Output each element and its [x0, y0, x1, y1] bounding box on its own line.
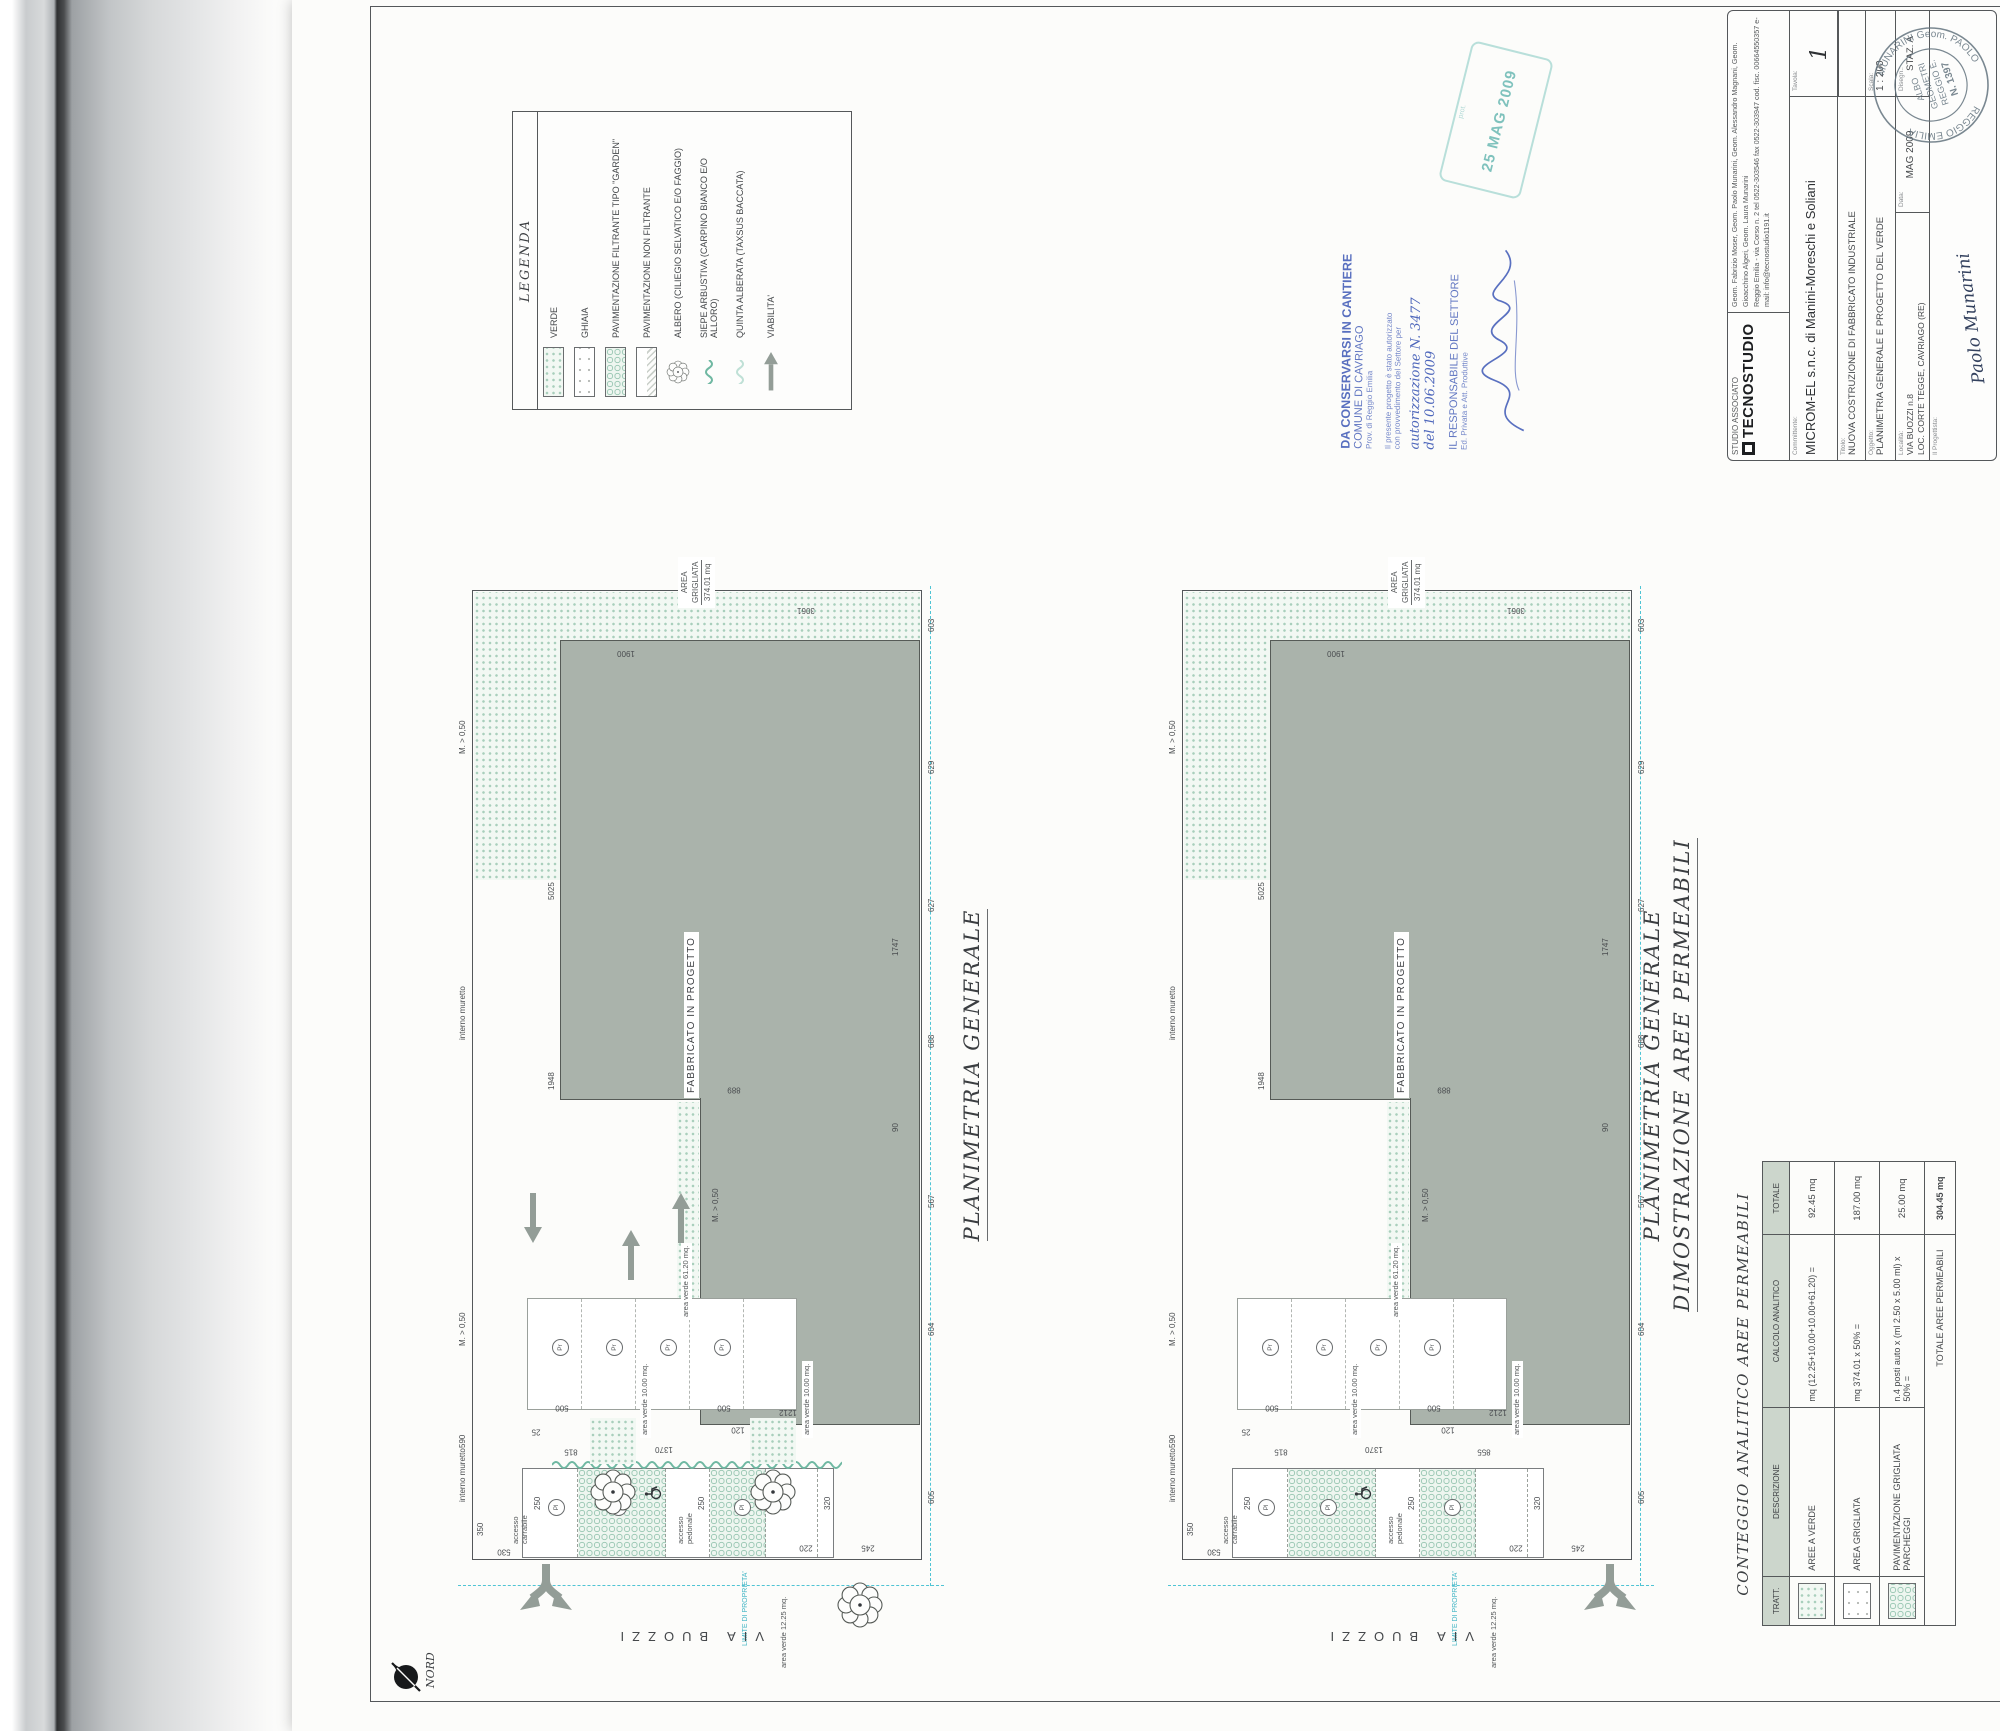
- dimension-label: 1900: [617, 649, 635, 657]
- committente-value: MICROM-EL s.n.c. di Manini-Moreschi e So…: [1803, 102, 1818, 455]
- scanner-edge-band: [0, 0, 292, 1731]
- viability-arrow-icon: [762, 352, 780, 392]
- parking-circle-pl: Pl: [1320, 1499, 1337, 1516]
- area-grigliata-value: 374.01 mq: [1412, 560, 1423, 605]
- accesso-label: accesso carrabile: [512, 1504, 529, 1544]
- stamp-received-date: 25 MAG 2009: [1474, 51, 1524, 191]
- parking-circle-pr: Pr: [714, 1339, 731, 1356]
- stamp-signature-scribble: [1469, 220, 1541, 451]
- studio-contacts: Reggio Emilia - via Corso n. 2 tel 0522-…: [1752, 16, 1774, 307]
- table-row: PAVIMENTAZIONE GRIGLIATA PARCHEGGI n.4 p…: [1880, 1162, 1925, 1626]
- drawing-sheet: NORD LEGENDA VERDEGHIAIAPAVIMENTAZIONE F…: [292, 0, 2000, 1731]
- area-grigliata-name: AREA GRIGLIATA: [679, 560, 702, 605]
- dimension-label: 3061: [797, 606, 815, 614]
- legend-item: ALBERO (CILIEGIO SELVATICO E/O FAGGIO): [662, 112, 693, 409]
- table-row: AREA GRIGLIATA mq 374.01 x 50% = 187.00 …: [1835, 1162, 1880, 1626]
- street-label: VIA BUOZZI: [612, 1629, 764, 1644]
- building-label: FABBRICATO IN PROGETTO: [684, 932, 699, 1098]
- area-verde-label: area verde 61.20 mq.: [681, 1243, 692, 1320]
- plan2-title: PLANIMETRIA GENERALE DIMOSTRAZIONE AREE …: [1640, 590, 1694, 1560]
- dimension-label: M. > 0,50: [1169, 1312, 1177, 1346]
- dimension-label: 5025: [548, 882, 556, 900]
- dimension-label: 90: [1602, 1123, 1610, 1132]
- dimension-label: 500: [1265, 1403, 1278, 1411]
- viability-arrow-icon: [672, 1193, 690, 1245]
- studio-small: STUDIO ASSOCIATO: [1731, 377, 1740, 455]
- swatch-half: [647, 348, 657, 396]
- col-descrizione: DESCRIZIONE: [1763, 1407, 1790, 1576]
- entrance-split-arrow-icon: [1574, 1562, 1646, 1614]
- hedge-icon: [702, 360, 716, 384]
- title-block: STUDIO ASSOCIATO TECNOSTUDIO Geom. Fabri…: [1727, 10, 1997, 461]
- site-plan-permeabili: FABBRICATO IN PROGETTOPrPrPrPrPlPlPl acc…: [1182, 590, 1632, 1560]
- dimension-label: 90: [892, 1123, 900, 1132]
- localita-line2: LOC. CORTE TEGGE, CAVRIAGO (RE): [1916, 218, 1927, 455]
- stamp-line: Prov. di Reggio Emilia: [1365, 169, 1377, 449]
- parking-circle-pr: Pr: [1316, 1339, 1333, 1356]
- legend-item-label: PAVIMENTAZIONE FILTRANTE TIPO "GARDEN": [611, 139, 621, 338]
- studio-names: Geom. Fabrizio Moser, Geom. Paolo Munari…: [1730, 16, 1752, 307]
- dimension-label: 815: [1274, 1447, 1287, 1455]
- dimension-label: 25: [1242, 1428, 1251, 1436]
- titolo-cell: Titolo: NUOVA COSTRUZIONE DI FABBRICATO …: [1838, 96, 1865, 460]
- dimension-label: 889: [727, 1085, 740, 1093]
- dimension-label: 1370: [655, 1445, 673, 1453]
- wheelchair-icon: [644, 1484, 662, 1502]
- dimension-label: 530: [497, 1547, 510, 1555]
- street-label: VIA BUOZZI: [1322, 1629, 1474, 1644]
- area-verde-label: area verde 10.00 mq.: [1350, 1361, 1361, 1438]
- entrance-arrow: [510, 1562, 582, 1614]
- localita-cell: Località: VIA BUOZZI n.8 LOC. CORTE TEGG…: [1896, 212, 1929, 460]
- viability-arrow-icon: [622, 1230, 640, 1282]
- stamp-date: del 10.06.2009: [1423, 169, 1441, 449]
- dimension-label: 590: [459, 1435, 467, 1448]
- dimension-label: 120: [731, 1425, 744, 1433]
- dimension-label: interno muretto: [459, 1448, 467, 1502]
- verde-patch: [590, 1418, 636, 1464]
- swatch-ghiaia: [574, 347, 595, 397]
- studio-info-cell: Geom. Fabrizio Moser, Geom. Paolo Munari…: [1728, 11, 1789, 312]
- dimension-label: 220: [1509, 1543, 1522, 1551]
- stamp-line: con provvedimento del Settore per: [1393, 169, 1405, 449]
- legend-item-label: GHIAIA: [580, 307, 590, 338]
- dimension-label: 1900: [1327, 649, 1345, 657]
- dimension-label: M. > 0,50: [459, 720, 467, 754]
- col-tratt: TRATT.: [1763, 1576, 1790, 1625]
- logo-square-icon: [1742, 442, 1755, 455]
- dimension-label: 1747: [1602, 938, 1610, 956]
- quinta-swatch: [729, 347, 750, 397]
- viability-arrow: [524, 1191, 542, 1243]
- dimension-label: 889: [1437, 1085, 1450, 1093]
- viability-arrow: [672, 1193, 690, 1245]
- permeable-areas-table: CONTEGGIO ANALITICO AREE PERMEABILI TRAT…: [1734, 1148, 1956, 1640]
- plan1-title: PLANIMETRIA GENERALE: [960, 590, 984, 1560]
- table-footer-row: TOTALE AREE PERMEABILI 304.45 mq: [1925, 1162, 1956, 1626]
- tree-icon: [747, 1466, 799, 1518]
- tecnostudio-logo: TECNOSTUDIO: [1740, 318, 1757, 455]
- legend-item: VIABILITA': [755, 112, 786, 409]
- tree-symbol: [834, 1579, 886, 1631]
- tree-icon: [834, 1579, 886, 1631]
- parking-column-private: [527, 1298, 797, 1410]
- viability-arrow-icon: [524, 1191, 542, 1243]
- parking-circle-pr: Pr: [1262, 1339, 1279, 1356]
- dimension-label: 220: [799, 1543, 812, 1551]
- dimension-label: 530: [1207, 1547, 1220, 1555]
- accesso-label: accesso pedonale: [677, 1504, 694, 1544]
- dimension-label: M. > 0,50: [712, 1188, 720, 1222]
- tree-symbol: [747, 1466, 799, 1518]
- table-header-row: TRATT. DESCRIZIONE CALCOLO ANALITICO TOT…: [1763, 1162, 1790, 1626]
- wheelchair-stall: [1354, 1484, 1372, 1502]
- dimension-label: 1948: [1258, 1072, 1266, 1090]
- area-grigliata-label: AREA GRIGLIATA374.01 mq: [1388, 557, 1425, 608]
- legend-item-label: PAVIMENTAZIONE NON FILTRANTE: [642, 187, 652, 338]
- area-grigliata-name: AREA GRIGLIATA: [1389, 560, 1412, 605]
- dimension-label: interno muretto: [459, 986, 467, 1040]
- parking-circle-pl: Pl: [1258, 1499, 1275, 1516]
- dimension-label: 688: [928, 1035, 936, 1048]
- legend-item: SIEPE ARBUSTIVA (CARPINO BIANCO E/O ALLO…: [693, 112, 724, 409]
- building-label: FABBRICATO IN PROGETTO: [1394, 932, 1409, 1098]
- committente-cell: Committente: MICROM-EL s.n.c. di Manini-…: [1790, 96, 1837, 460]
- swatch-half: [637, 348, 647, 396]
- dimension-label: 5025: [1258, 882, 1266, 900]
- north-symbol: NORD: [388, 1635, 437, 1695]
- area-verde-label: area verde 10.00 mq.: [1512, 1361, 1523, 1438]
- area-verde-label: area verde 61.20 mq.: [1391, 1243, 1402, 1320]
- dimension-label: M. > 0,50: [1422, 1188, 1430, 1222]
- plan2-title-line1: PLANIMETRIA GENERALE: [1640, 590, 1664, 1560]
- dimension-label: 604: [928, 1323, 936, 1336]
- swatch-verde: [543, 347, 564, 397]
- accesso-label: accesso pedonale: [1387, 1504, 1404, 1544]
- swatch-verde: [1798, 1583, 1826, 1619]
- dimension-label: interno muretto: [1169, 986, 1177, 1040]
- dimension-label: 1948: [548, 1072, 556, 1090]
- arrow-swatch: [760, 347, 781, 397]
- dimension-label: M. > 0,50: [459, 1312, 467, 1346]
- table-title: CONTEGGIO ANALITICO AREE PERMEABILI: [1734, 1148, 1752, 1640]
- table-row: AREE A VERDE mq (12.25+10.00+10.00+61.20…: [1790, 1162, 1835, 1626]
- legend-item: PAVIMENTAZIONE FILTRANTE TIPO "GARDEN": [600, 112, 631, 409]
- legend-item: GHIAIA: [569, 112, 600, 409]
- dimension-label: 250: [1408, 1497, 1416, 1510]
- dimension-label: 1212: [779, 1408, 797, 1416]
- dimension-label: interno muretto: [1169, 1448, 1177, 1502]
- tree-icon: [665, 359, 691, 385]
- parking-column-private: [1237, 1298, 1507, 1410]
- plan2-title-line2: DIMOSTRAZIONE AREE PERMEABILI: [1670, 838, 1698, 1311]
- dimension-label: 245: [1571, 1543, 1584, 1551]
- area-grigliata-value: 374.01 mq: [702, 560, 713, 605]
- legend: LEGENDA VERDEGHIAIAPAVIMENTAZIONE FILTRA…: [512, 111, 852, 410]
- swatch-garden: [1888, 1583, 1916, 1619]
- dimension-label: 815: [564, 1447, 577, 1455]
- wheelchair-stall: [644, 1484, 662, 1502]
- studio-logo-cell: STUDIO ASSOCIATO TECNOSTUDIO: [1728, 312, 1789, 460]
- dimension-label: 3061: [1507, 606, 1525, 614]
- nonfiltrante-swatch: [636, 347, 657, 397]
- dimension-label: 603: [928, 619, 936, 632]
- area-verde-label: area verde 10.00 mq.: [640, 1361, 651, 1438]
- entrance-arrow: [1574, 1562, 1646, 1614]
- accesso-label: accesso carrabile: [1222, 1504, 1239, 1544]
- dimension-label: 320: [1534, 1497, 1542, 1510]
- dimension-label: 1370: [1365, 1445, 1383, 1453]
- dimension-label: 350: [477, 1523, 485, 1536]
- dimension-label: 250: [534, 1497, 542, 1510]
- hedge-icon: [733, 360, 747, 384]
- dimension-label: 1747: [892, 938, 900, 956]
- localita-line1: VIA BUOZZI n.8: [1905, 218, 1916, 455]
- dimension-label: 25: [532, 1428, 541, 1436]
- dimension-label: 567: [928, 1195, 936, 1208]
- dimension-label: 605: [928, 1491, 936, 1504]
- dimension-label: 1212: [1489, 1408, 1507, 1416]
- legend-item: PAVIMENTAZIONE NON FILTRANTE: [631, 112, 662, 409]
- legend-title: LEGENDA: [513, 112, 538, 409]
- north-label: NORD: [424, 1635, 437, 1688]
- legend-item: QUINTA ALBERATA (TAXSUS BACCATA): [724, 112, 755, 409]
- swatch-garden: [605, 347, 626, 397]
- legend-item-label: ALBERO (CILIEGIO SELVATICO E/O FAGGIO): [673, 148, 683, 338]
- oggetto-value: PLANIMETRIA GENERALE E PROGETTO DEL VERD…: [1875, 217, 1886, 455]
- wheelchair-icon: [1354, 1484, 1372, 1502]
- dimension-label: 627: [928, 899, 936, 912]
- dimension-label: 250: [698, 1497, 706, 1510]
- tree-icon: [587, 1466, 639, 1518]
- titolo-value: NUOVA COSTRUZIONE DI FABBRICATO INDUSTRI…: [1847, 211, 1858, 455]
- area-verde-label: area verde 12.25 mq.: [1490, 1597, 1499, 1668]
- dimension-label: M. > 0,50: [1169, 720, 1177, 754]
- parking-circle-pr: Pr: [606, 1339, 623, 1356]
- area-grigliata-label: AREA GRIGLIATA374.01 mq: [678, 557, 715, 608]
- legend-item-label: VIABILITA': [766, 295, 776, 338]
- building-main: [560, 640, 920, 1100]
- tree-symbol: [587, 1466, 639, 1518]
- dimension-label: 320: [824, 1497, 832, 1510]
- dimension-label: 120: [1441, 1425, 1454, 1433]
- area-verde-label: area verde 10.00 mq.: [802, 1361, 813, 1438]
- tavola-value: 1: [1807, 16, 1832, 91]
- dimension-label: 629: [928, 761, 936, 774]
- parking-circle-pr: Pr: [660, 1339, 677, 1356]
- tree-swatch: [667, 347, 688, 397]
- parking-circle-pr: Pr: [1370, 1339, 1387, 1356]
- legend-item: VERDE: [538, 112, 569, 409]
- dimension-label: 245: [861, 1543, 874, 1551]
- swatch-grigliata: [1843, 1583, 1871, 1619]
- verde-patch: [750, 1418, 796, 1464]
- dimension-label: 500: [1427, 1403, 1440, 1411]
- dimension-label: 855: [1477, 1447, 1490, 1455]
- site-plan-generale: FABBRICATO IN PROGETTOPrPrPrPrPlPlPl acc…: [472, 590, 922, 1560]
- parking-circle-pr: Pr: [1424, 1339, 1441, 1356]
- hedge-swatch: [698, 347, 719, 397]
- col-calcolo: CALCOLO ANALITICO: [1763, 1235, 1790, 1407]
- entrance-split-arrow-icon: [510, 1562, 582, 1614]
- parking-circle-pl: Pl: [548, 1499, 565, 1516]
- legend-item-label: VERDE: [549, 307, 559, 338]
- compass-icon: [388, 1659, 424, 1695]
- parking-circle-pr: Pr: [552, 1339, 569, 1356]
- property-limit-line: [930, 586, 931, 1586]
- dimension-label: 350: [1187, 1523, 1195, 1536]
- legend-item-label: QUINTA ALBERATA (TAXSUS BACCATA): [735, 170, 745, 338]
- building-main: [1270, 640, 1630, 1100]
- area-verde-label: area verde 12.25 mq.: [780, 1597, 789, 1668]
- municipal-stamp: DA CONSERVARSI IN CANTIERE COMUNE DI CAV…: [1339, 169, 1607, 452]
- dimension-label: 500: [555, 1403, 568, 1411]
- viability-arrow: [622, 1230, 640, 1282]
- legend-item-label: SIEPE ARBUSTIVA (CARPINO BIANCO E/O ALLO…: [699, 122, 719, 338]
- col-totale: TOTALE: [1763, 1162, 1790, 1236]
- dimension-label: 250: [1244, 1497, 1252, 1510]
- dimension-label: 590: [1169, 1435, 1177, 1448]
- parking-circle-pl: Pl: [1444, 1499, 1461, 1516]
- dimension-label: 500: [717, 1403, 730, 1411]
